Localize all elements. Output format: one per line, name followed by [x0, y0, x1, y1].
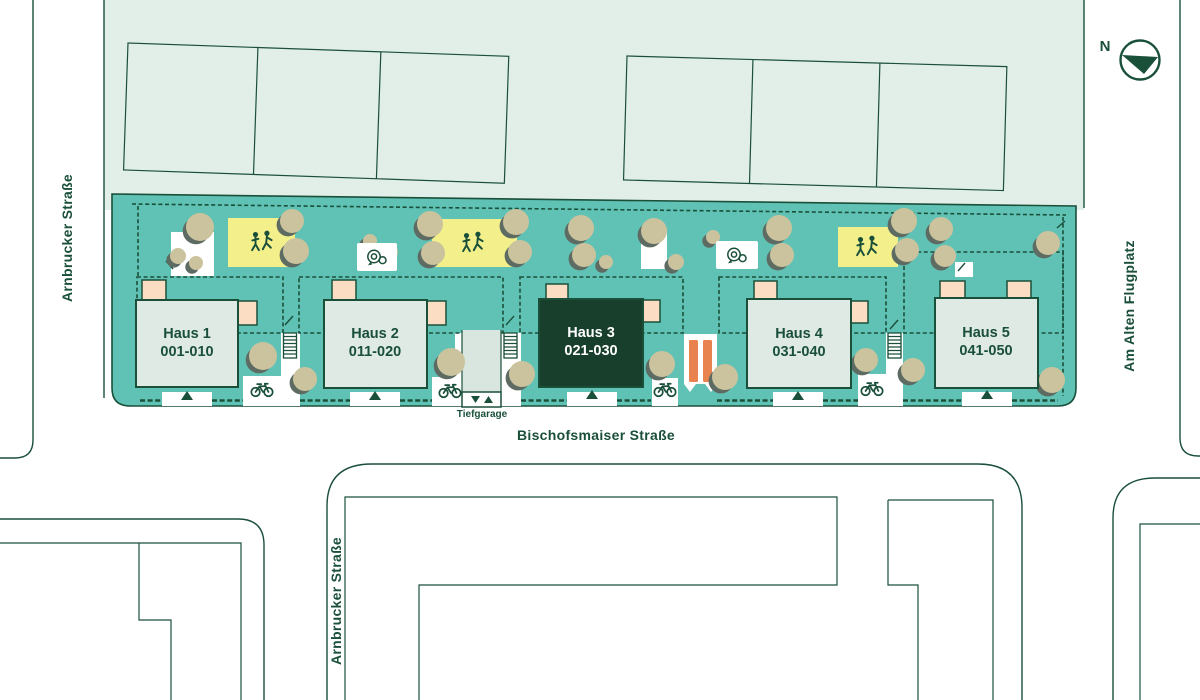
block-top-right: [1180, 0, 1200, 456]
balcony: [427, 301, 446, 325]
stairs-icon: [504, 333, 517, 358]
playground-3: [838, 227, 898, 267]
compass-label: N: [1100, 38, 1111, 55]
balcony: [643, 300, 660, 322]
underground-garage-ramp: Tiefgarage: [457, 330, 508, 420]
building-outline: [1140, 524, 1200, 700]
house-units: 011-020: [349, 344, 401, 360]
balcony: [238, 301, 257, 325]
site-plan-map: Tiefgarage: [0, 0, 1200, 700]
house-name: Haus 3: [567, 325, 615, 341]
house-units: 021-030: [564, 343, 617, 359]
building-outline: [345, 497, 993, 700]
house-name: Haus 1: [163, 326, 211, 342]
block-bottom-right: [1113, 478, 1200, 700]
house-name: Haus 2: [351, 326, 399, 342]
blocks-bottom: [0, 464, 1200, 700]
balcony: [1007, 281, 1031, 298]
house-name: Haus 4: [775, 326, 823, 342]
balcony: [142, 280, 166, 300]
spiral-play-element-icon: [357, 243, 397, 271]
stairs-icon: [284, 333, 297, 358]
house-4[interactable]: Haus 4 031-040: [747, 281, 868, 400]
balcony: [546, 284, 568, 300]
street-label-am-alten-flugplatz: Am Alten Flugplatz: [1121, 240, 1137, 372]
balcony: [851, 301, 868, 323]
building-outline: [0, 543, 241, 700]
street-label-arnbrucker-bottom: Arnbrucker Straße: [328, 537, 344, 665]
house-units: 031-040: [772, 344, 825, 360]
compass-north-icon: N: [1100, 38, 1160, 80]
house-name: Haus 5: [962, 325, 1010, 341]
garage-label: Tiefgarage: [457, 409, 508, 420]
balcony: [940, 281, 965, 298]
street-label-bischofsmaiser: Bischofsmaiser Straße: [517, 427, 675, 443]
block-bottom-left: [0, 519, 264, 700]
house-5[interactable]: Haus 5 041-050: [935, 281, 1038, 399]
house-units: 041-050: [959, 343, 1012, 359]
balcony: [754, 281, 777, 300]
block-top: [104, 0, 1084, 210]
balcony: [332, 280, 356, 300]
street-label-arnbrucker-top: Arnbrucker Straße: [59, 174, 75, 302]
house-units: 001-010: [160, 344, 213, 360]
house-3[interactable]: Haus 3 021-030: [539, 284, 660, 399]
spiral-play-element-icon: [716, 241, 758, 269]
stairs-icon: [888, 333, 901, 358]
block-top-left: [0, 0, 33, 458]
